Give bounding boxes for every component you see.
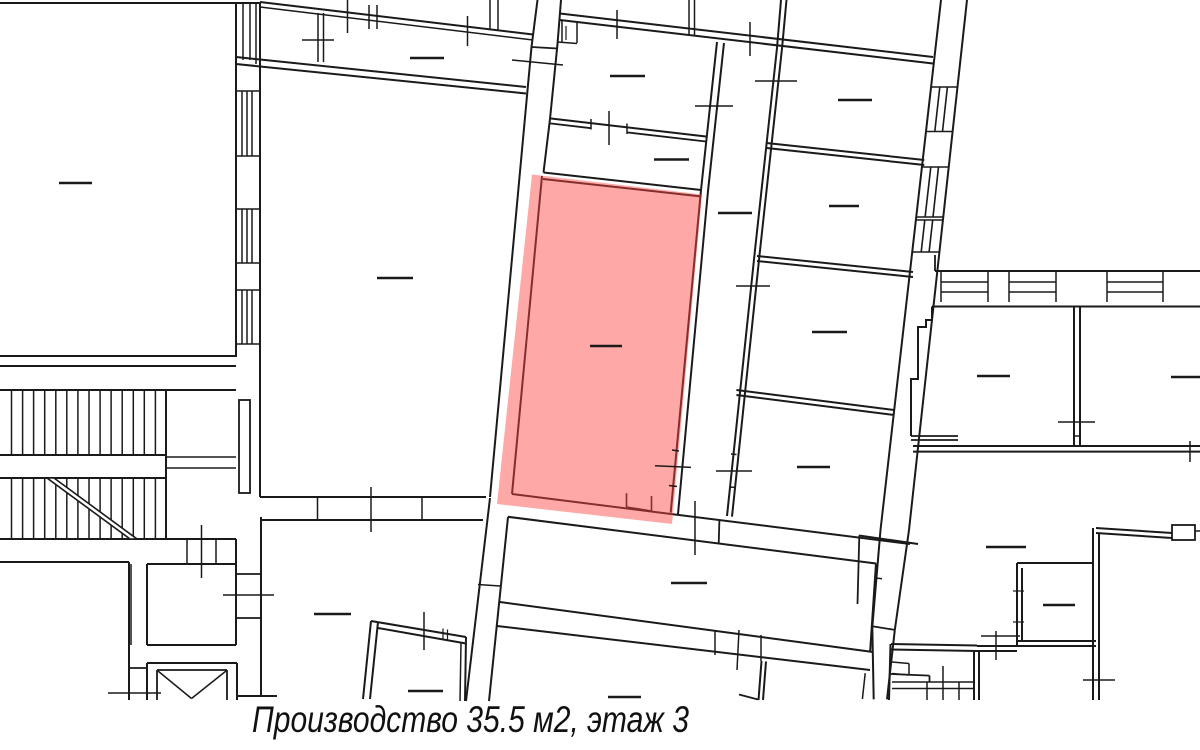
svg-text:Производство 35.5 м2, этаж 3: Производство 35.5 м2, этаж 3 (252, 699, 689, 740)
